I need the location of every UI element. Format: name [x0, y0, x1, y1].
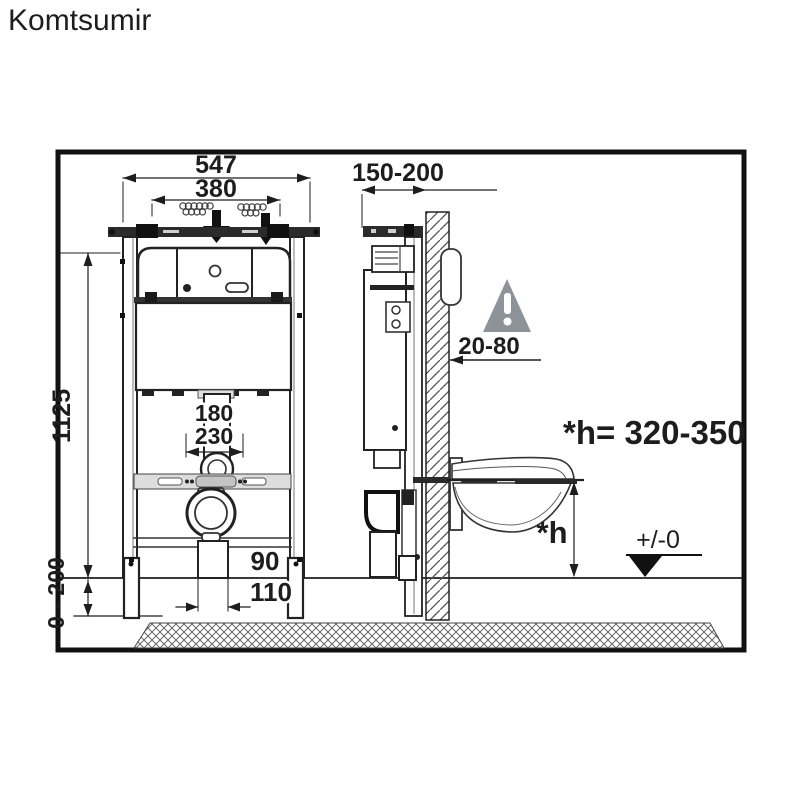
label-floor-datum: +/-0 — [636, 526, 680, 554]
label-inner-width: 380 — [195, 175, 237, 203]
lower-mounting-band — [134, 474, 291, 489]
cistern-tank — [136, 303, 291, 398]
cistern-top-panel — [134, 248, 292, 306]
label-flush-pipe-dia: 90 — [251, 546, 280, 576]
screenshot-root: Komtsumir — [0, 0, 800, 800]
label-flush-offset-bottom: 230 — [195, 423, 233, 449]
label-drain-pipe-dia: 110 — [250, 577, 292, 607]
label-mounting-depth: 150-200 — [352, 159, 444, 187]
screw-dot-left — [129, 557, 134, 562]
label-seat-height-formula: *h= 320-350 — [563, 414, 746, 451]
label-leg-adjust: 0 - 200 — [43, 557, 69, 629]
screw-dot-right — [297, 557, 302, 562]
label-seat-height: *h — [537, 515, 568, 550]
mounting-rod-right — [515, 479, 577, 484]
side-top-bracket — [363, 224, 423, 238]
ground-hatch-band — [134, 623, 724, 648]
label-wall-finish-gap: 20-80 — [458, 333, 519, 360]
flush-plate-housing — [441, 249, 461, 305]
side-flush-elbow — [366, 490, 420, 580]
brand-logo-text: Komtsumir — [8, 4, 151, 37]
installation-diagram: Komtsumir — [0, 0, 800, 800]
side-cistern — [364, 246, 414, 468]
label-frame-height: 1125 — [48, 389, 76, 443]
